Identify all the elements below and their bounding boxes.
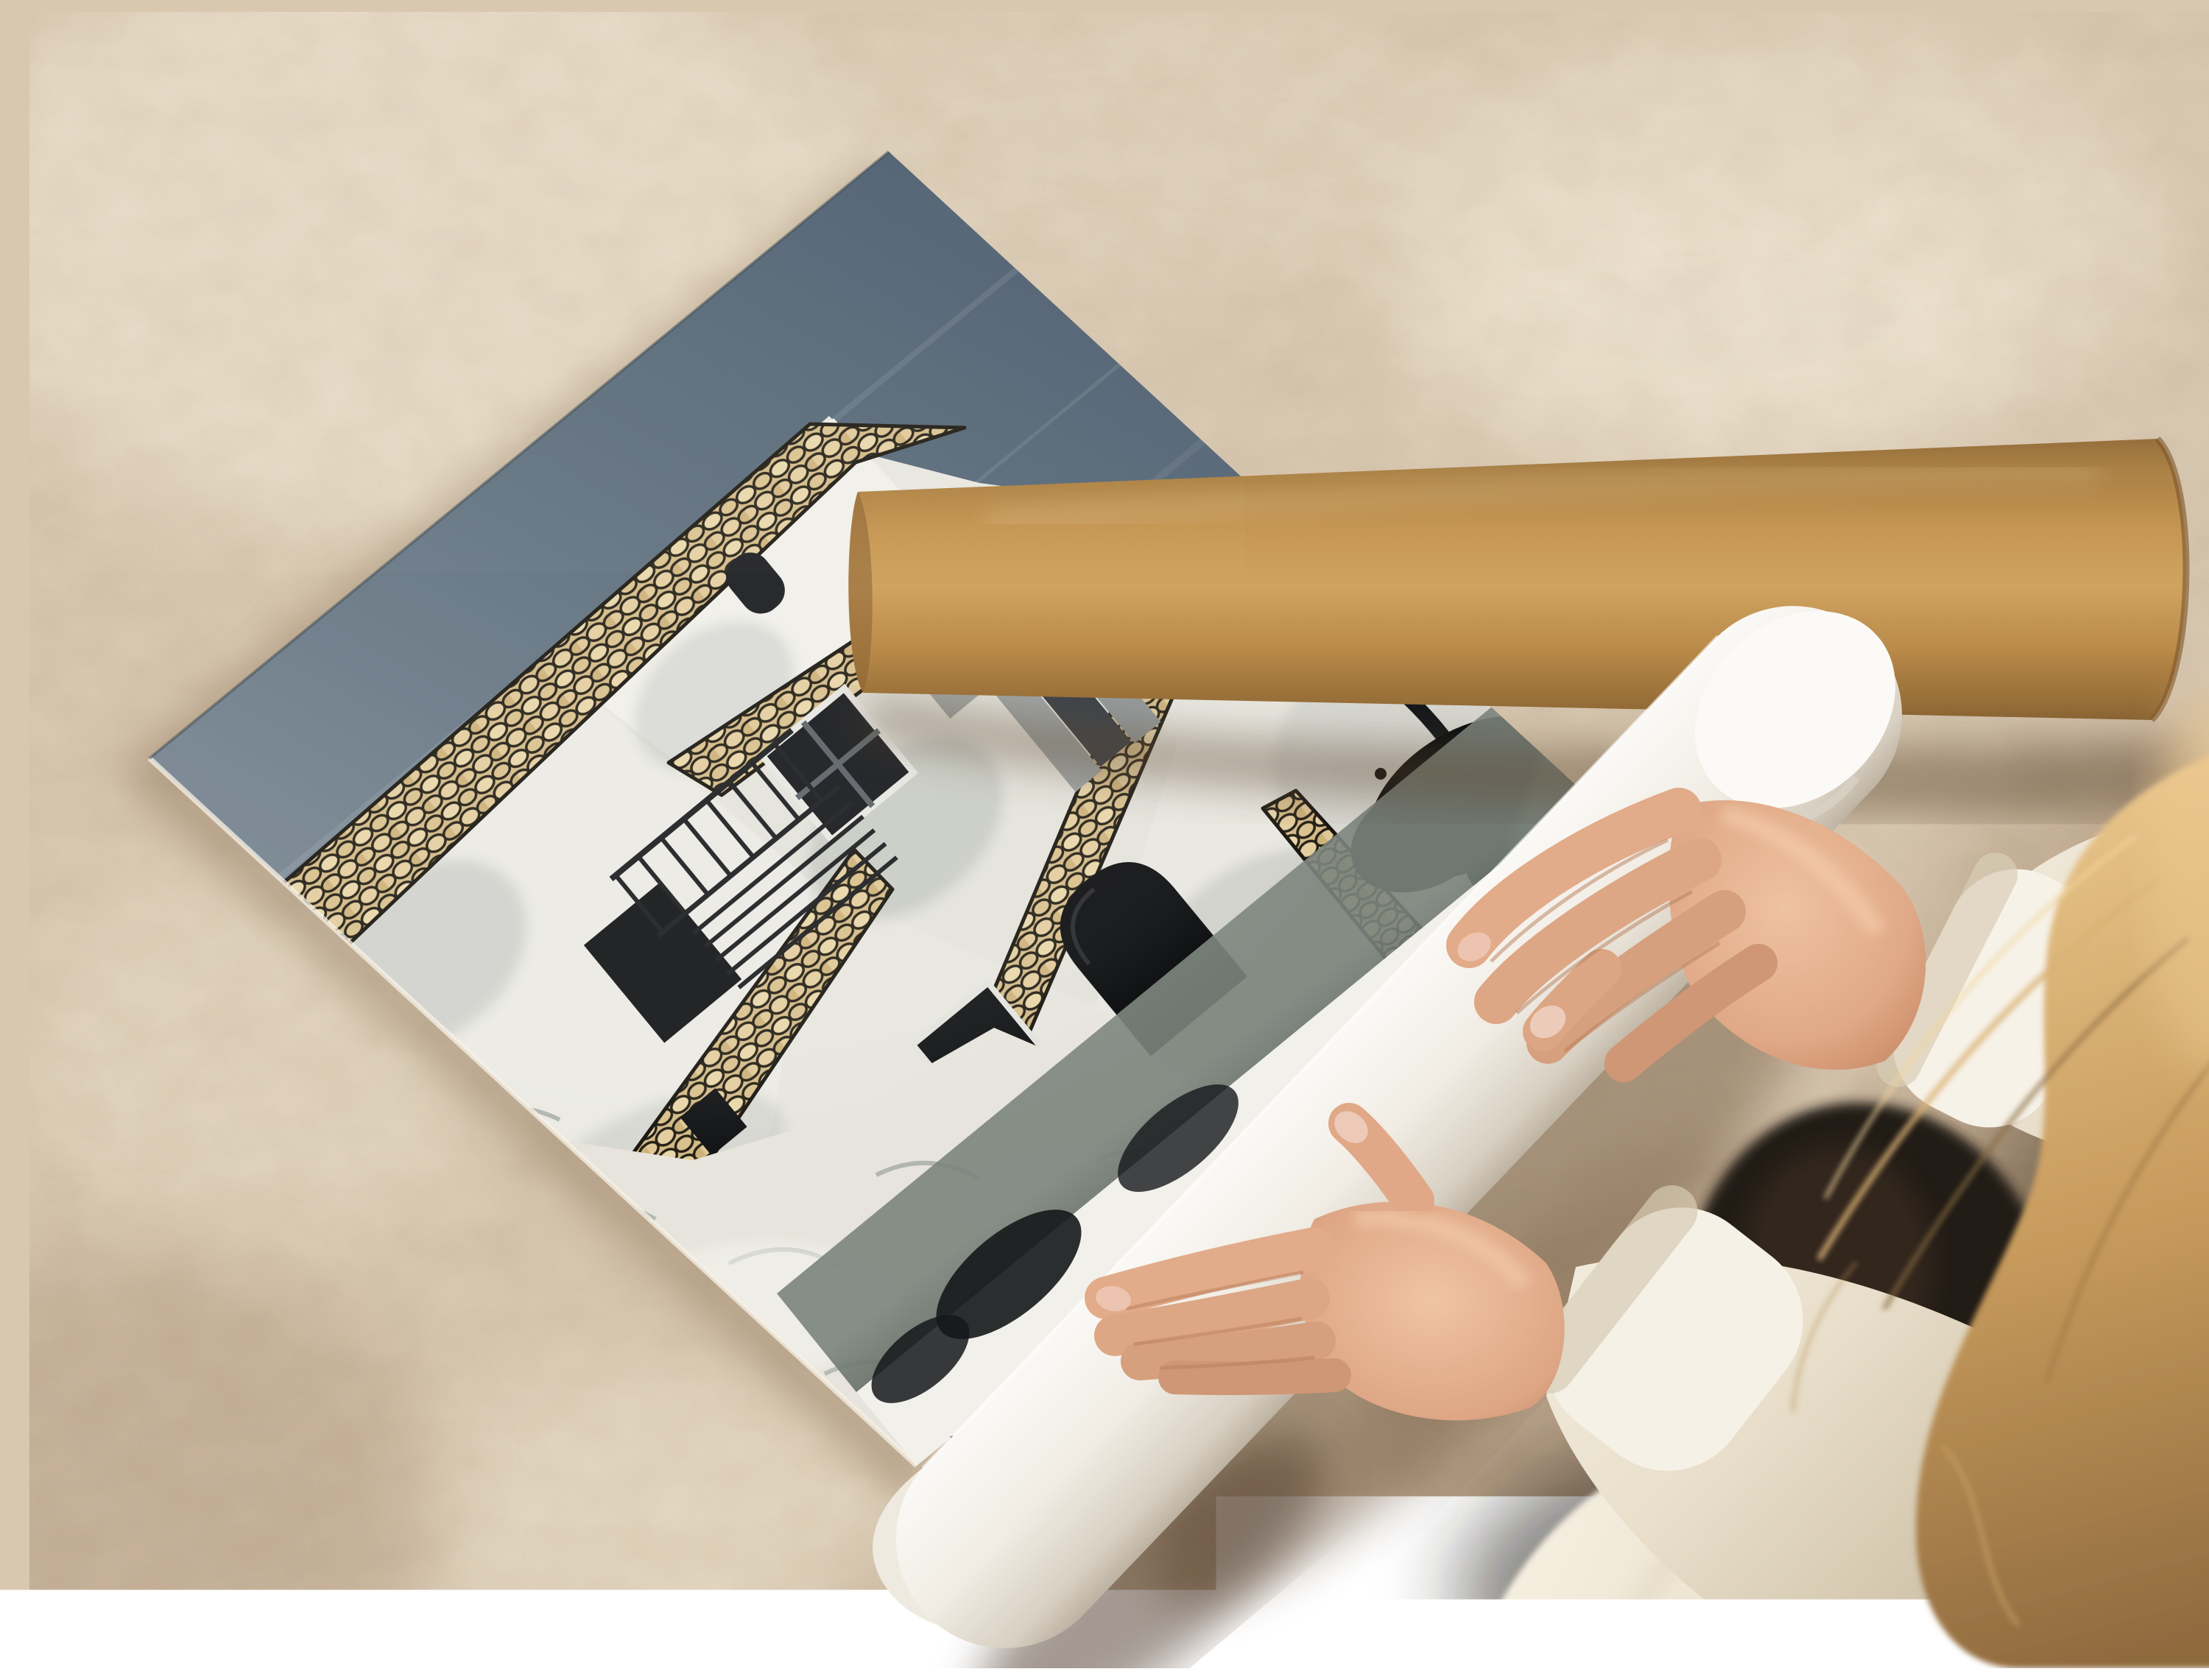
photo-grain-overlay (29, 12, 2209, 1668)
scene-canvas (29, 12, 2209, 1668)
poster-unrolling-photo: A woman with blonde hair wearing a cream… (29, 12, 2209, 1668)
